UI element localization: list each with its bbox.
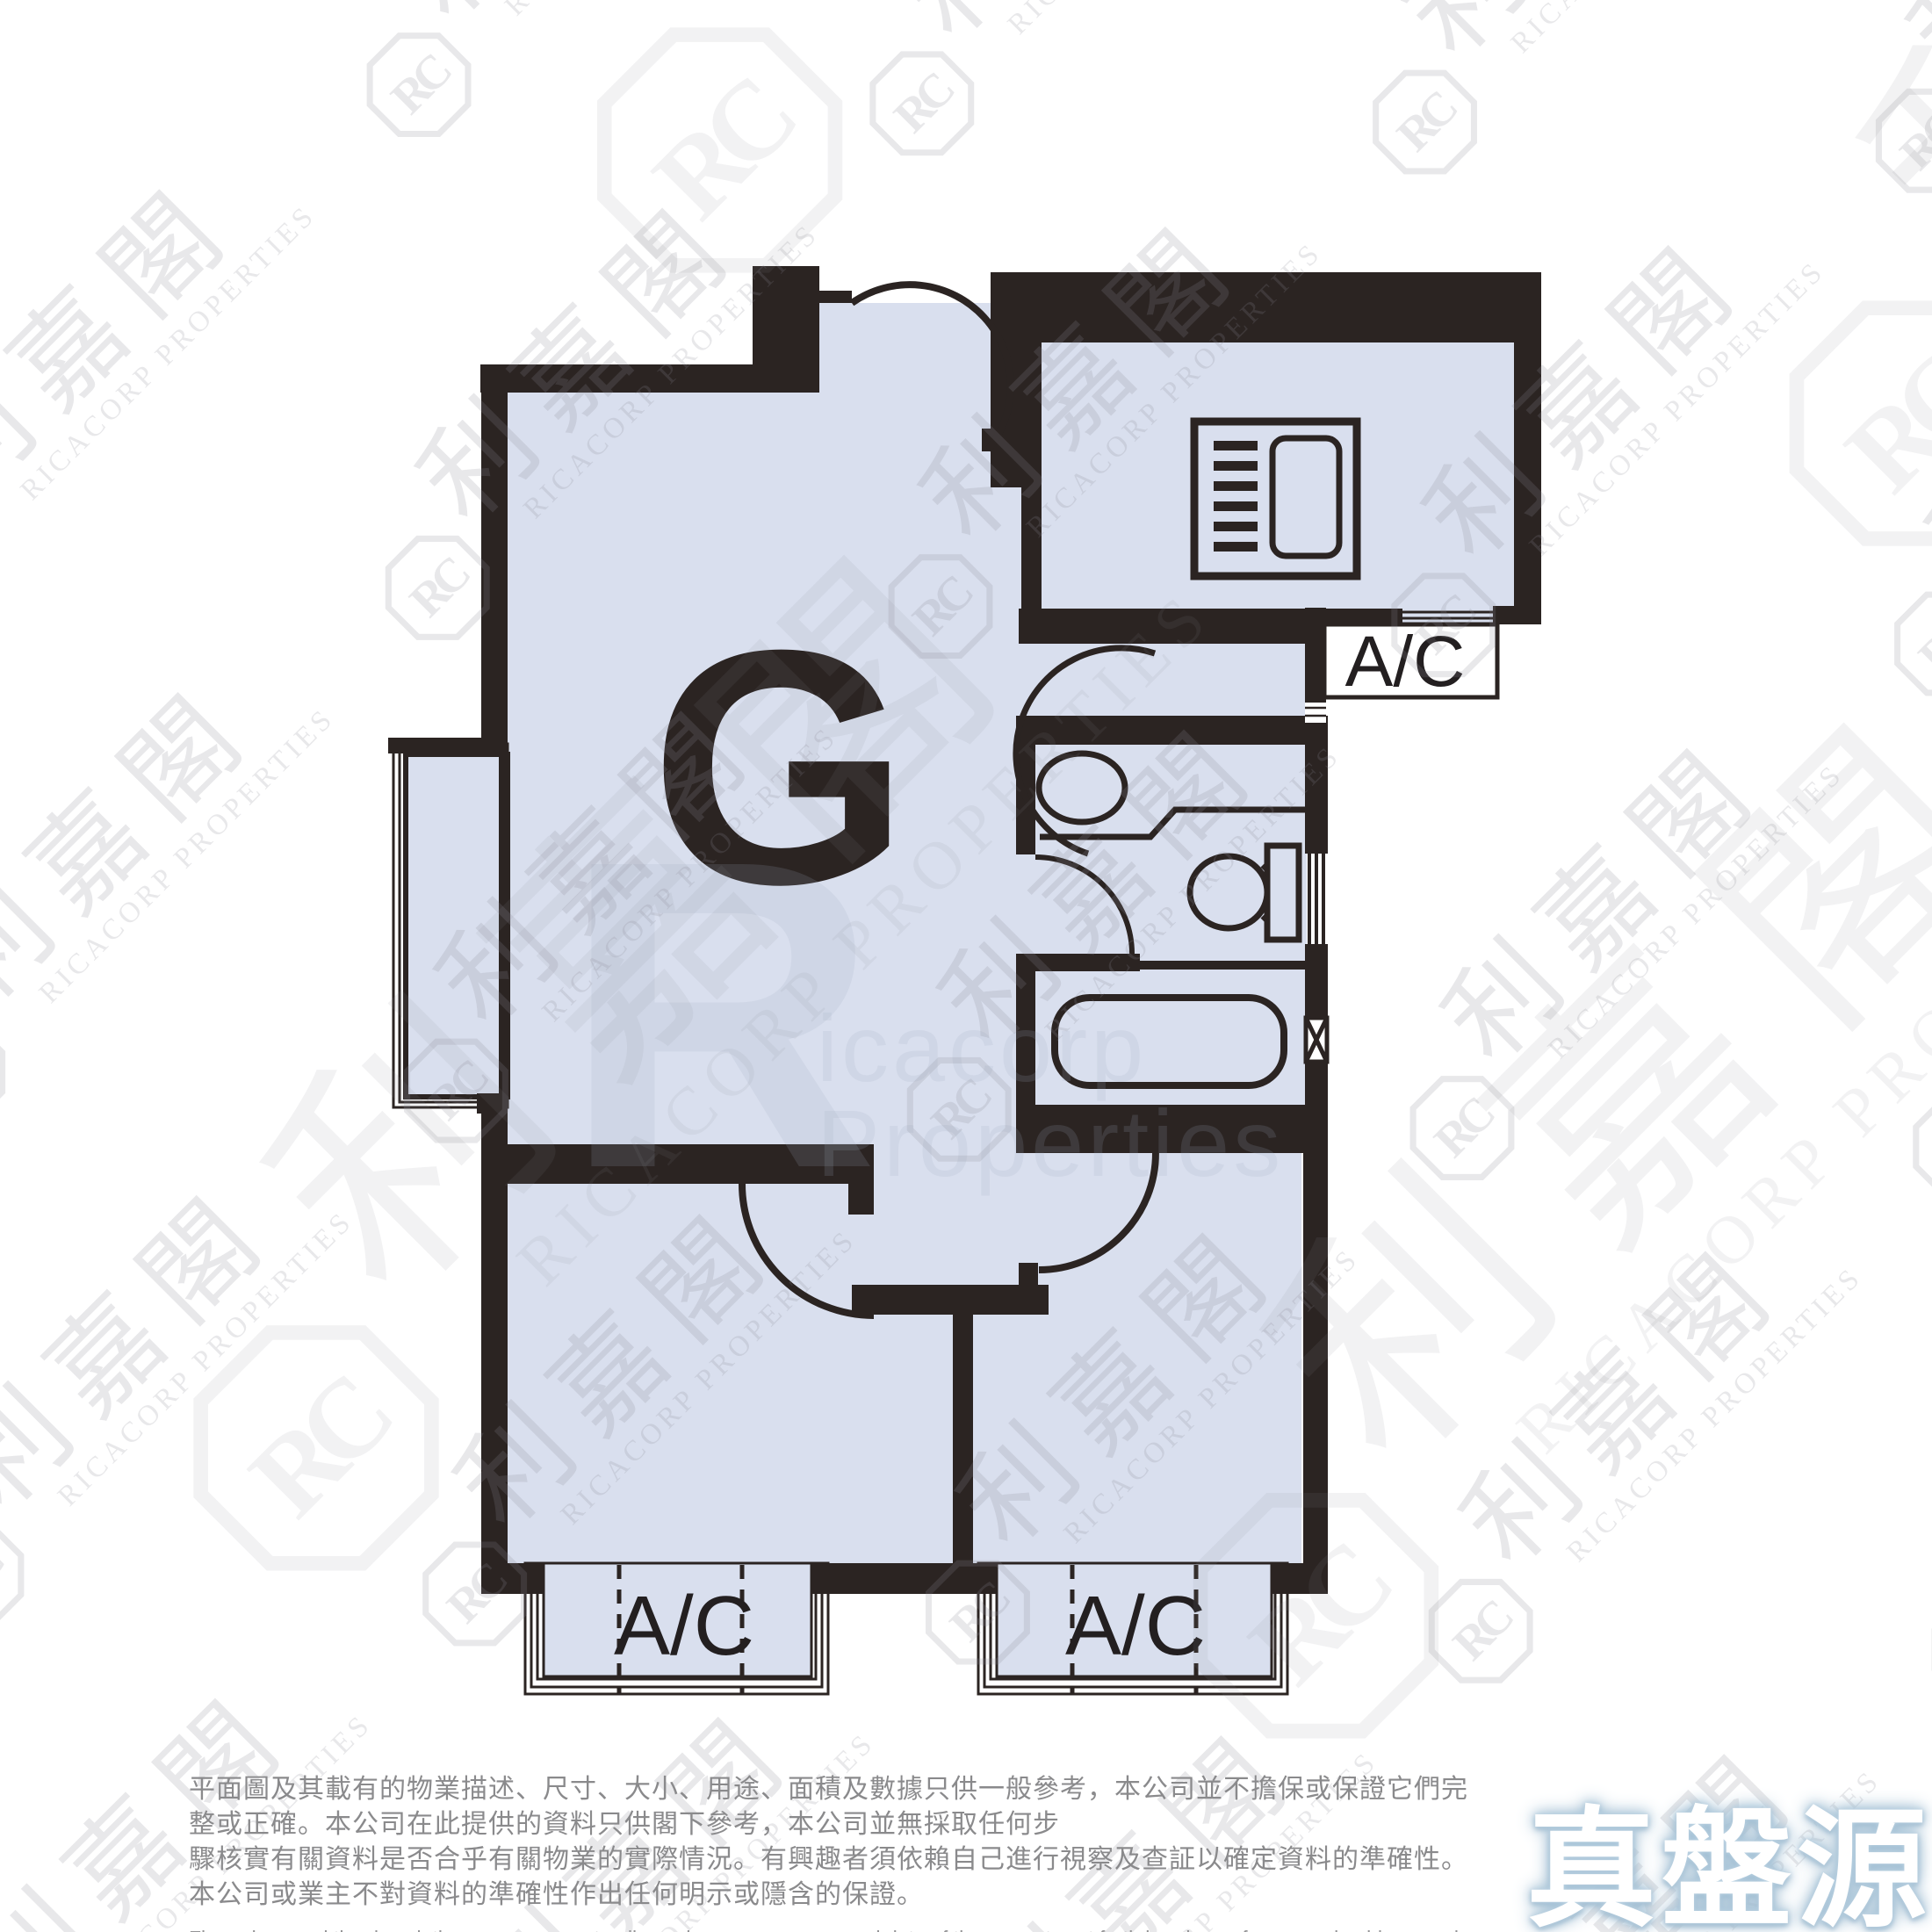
living-room-floor xyxy=(508,393,1021,1563)
wall-segment xyxy=(481,1144,874,1184)
wall-segment xyxy=(753,266,819,393)
wall-segment xyxy=(1016,1105,1328,1153)
x-window xyxy=(1306,1018,1327,1062)
wall-segment xyxy=(1303,1142,1328,1594)
wall-segment xyxy=(481,1563,544,1594)
bay-window-glass xyxy=(407,753,508,1096)
wall-segment xyxy=(480,364,753,393)
wall-segment xyxy=(819,291,852,303)
floor-plan-drawing: G A/C A/C A/C xyxy=(0,0,1932,1932)
disclaimer-zh-line2: 驟核實有關資料是否合乎有關物業的實際情況。有興趣者須依賴自己進行視察及查証以確定… xyxy=(189,1842,1480,1913)
bedroom-right-floor xyxy=(961,1105,1301,1563)
wall-segment xyxy=(811,1563,997,1594)
verified-listing-badge: 真盤源 xyxy=(1526,1763,1932,1932)
wall-segment xyxy=(953,1311,973,1565)
wall-segment xyxy=(1493,606,1541,624)
wall-segment xyxy=(1017,1124,1038,1153)
wall-segment xyxy=(1016,716,1328,745)
wall-segment xyxy=(991,342,1042,487)
louvre-window xyxy=(1309,854,1323,944)
wall-segment xyxy=(388,738,508,753)
ac-label-right: A/C xyxy=(1065,1579,1206,1673)
unit-label: G xyxy=(650,580,910,954)
wall-segment xyxy=(1514,342,1541,624)
corridor-window xyxy=(1305,703,1326,723)
wall-segment xyxy=(1305,944,1328,1018)
wall-segment xyxy=(1021,487,1042,610)
wall-segment xyxy=(1305,745,1328,854)
wall-segment xyxy=(852,1285,1049,1315)
floor-plan-page: G A/C A/C A/C R icacorp Properties RC 利嘉… xyxy=(0,0,1932,1932)
wall-segment xyxy=(1140,961,1305,970)
wall-segment xyxy=(481,1114,508,1594)
wall-segment xyxy=(481,364,508,753)
ac-label-kitchen: A/C xyxy=(1345,622,1466,702)
wall-segment xyxy=(848,1184,874,1215)
disclaimer-en-line1: Floor plans and the description, measure… xyxy=(189,1925,1480,1932)
wall-segment xyxy=(991,272,1541,342)
ac-label-left: A/C xyxy=(614,1579,754,1673)
disclaimer-zh-line1: 平面圖及其載有的物業描述、尺寸、大小、用途、面積及數據只供一般參考，本公司並不擔… xyxy=(189,1772,1480,1842)
disclaimer-block: 平面圖及其載有的物業描述、尺寸、大小、用途、面積及數據只供一般參考，本公司並不擔… xyxy=(189,1772,1480,1932)
